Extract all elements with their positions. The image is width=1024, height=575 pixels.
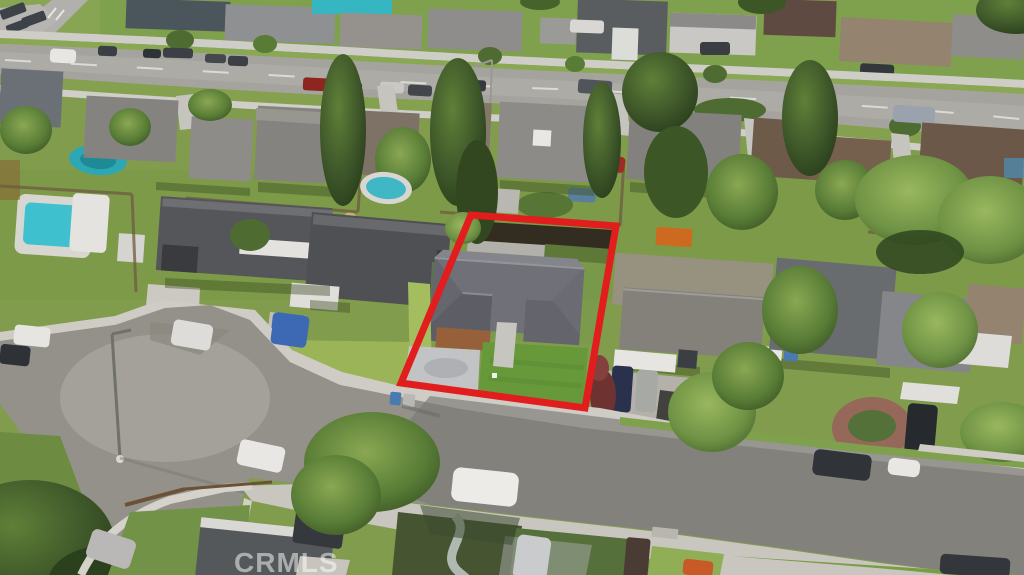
svg-text:CRMLS: CRMLS: [234, 547, 339, 575]
